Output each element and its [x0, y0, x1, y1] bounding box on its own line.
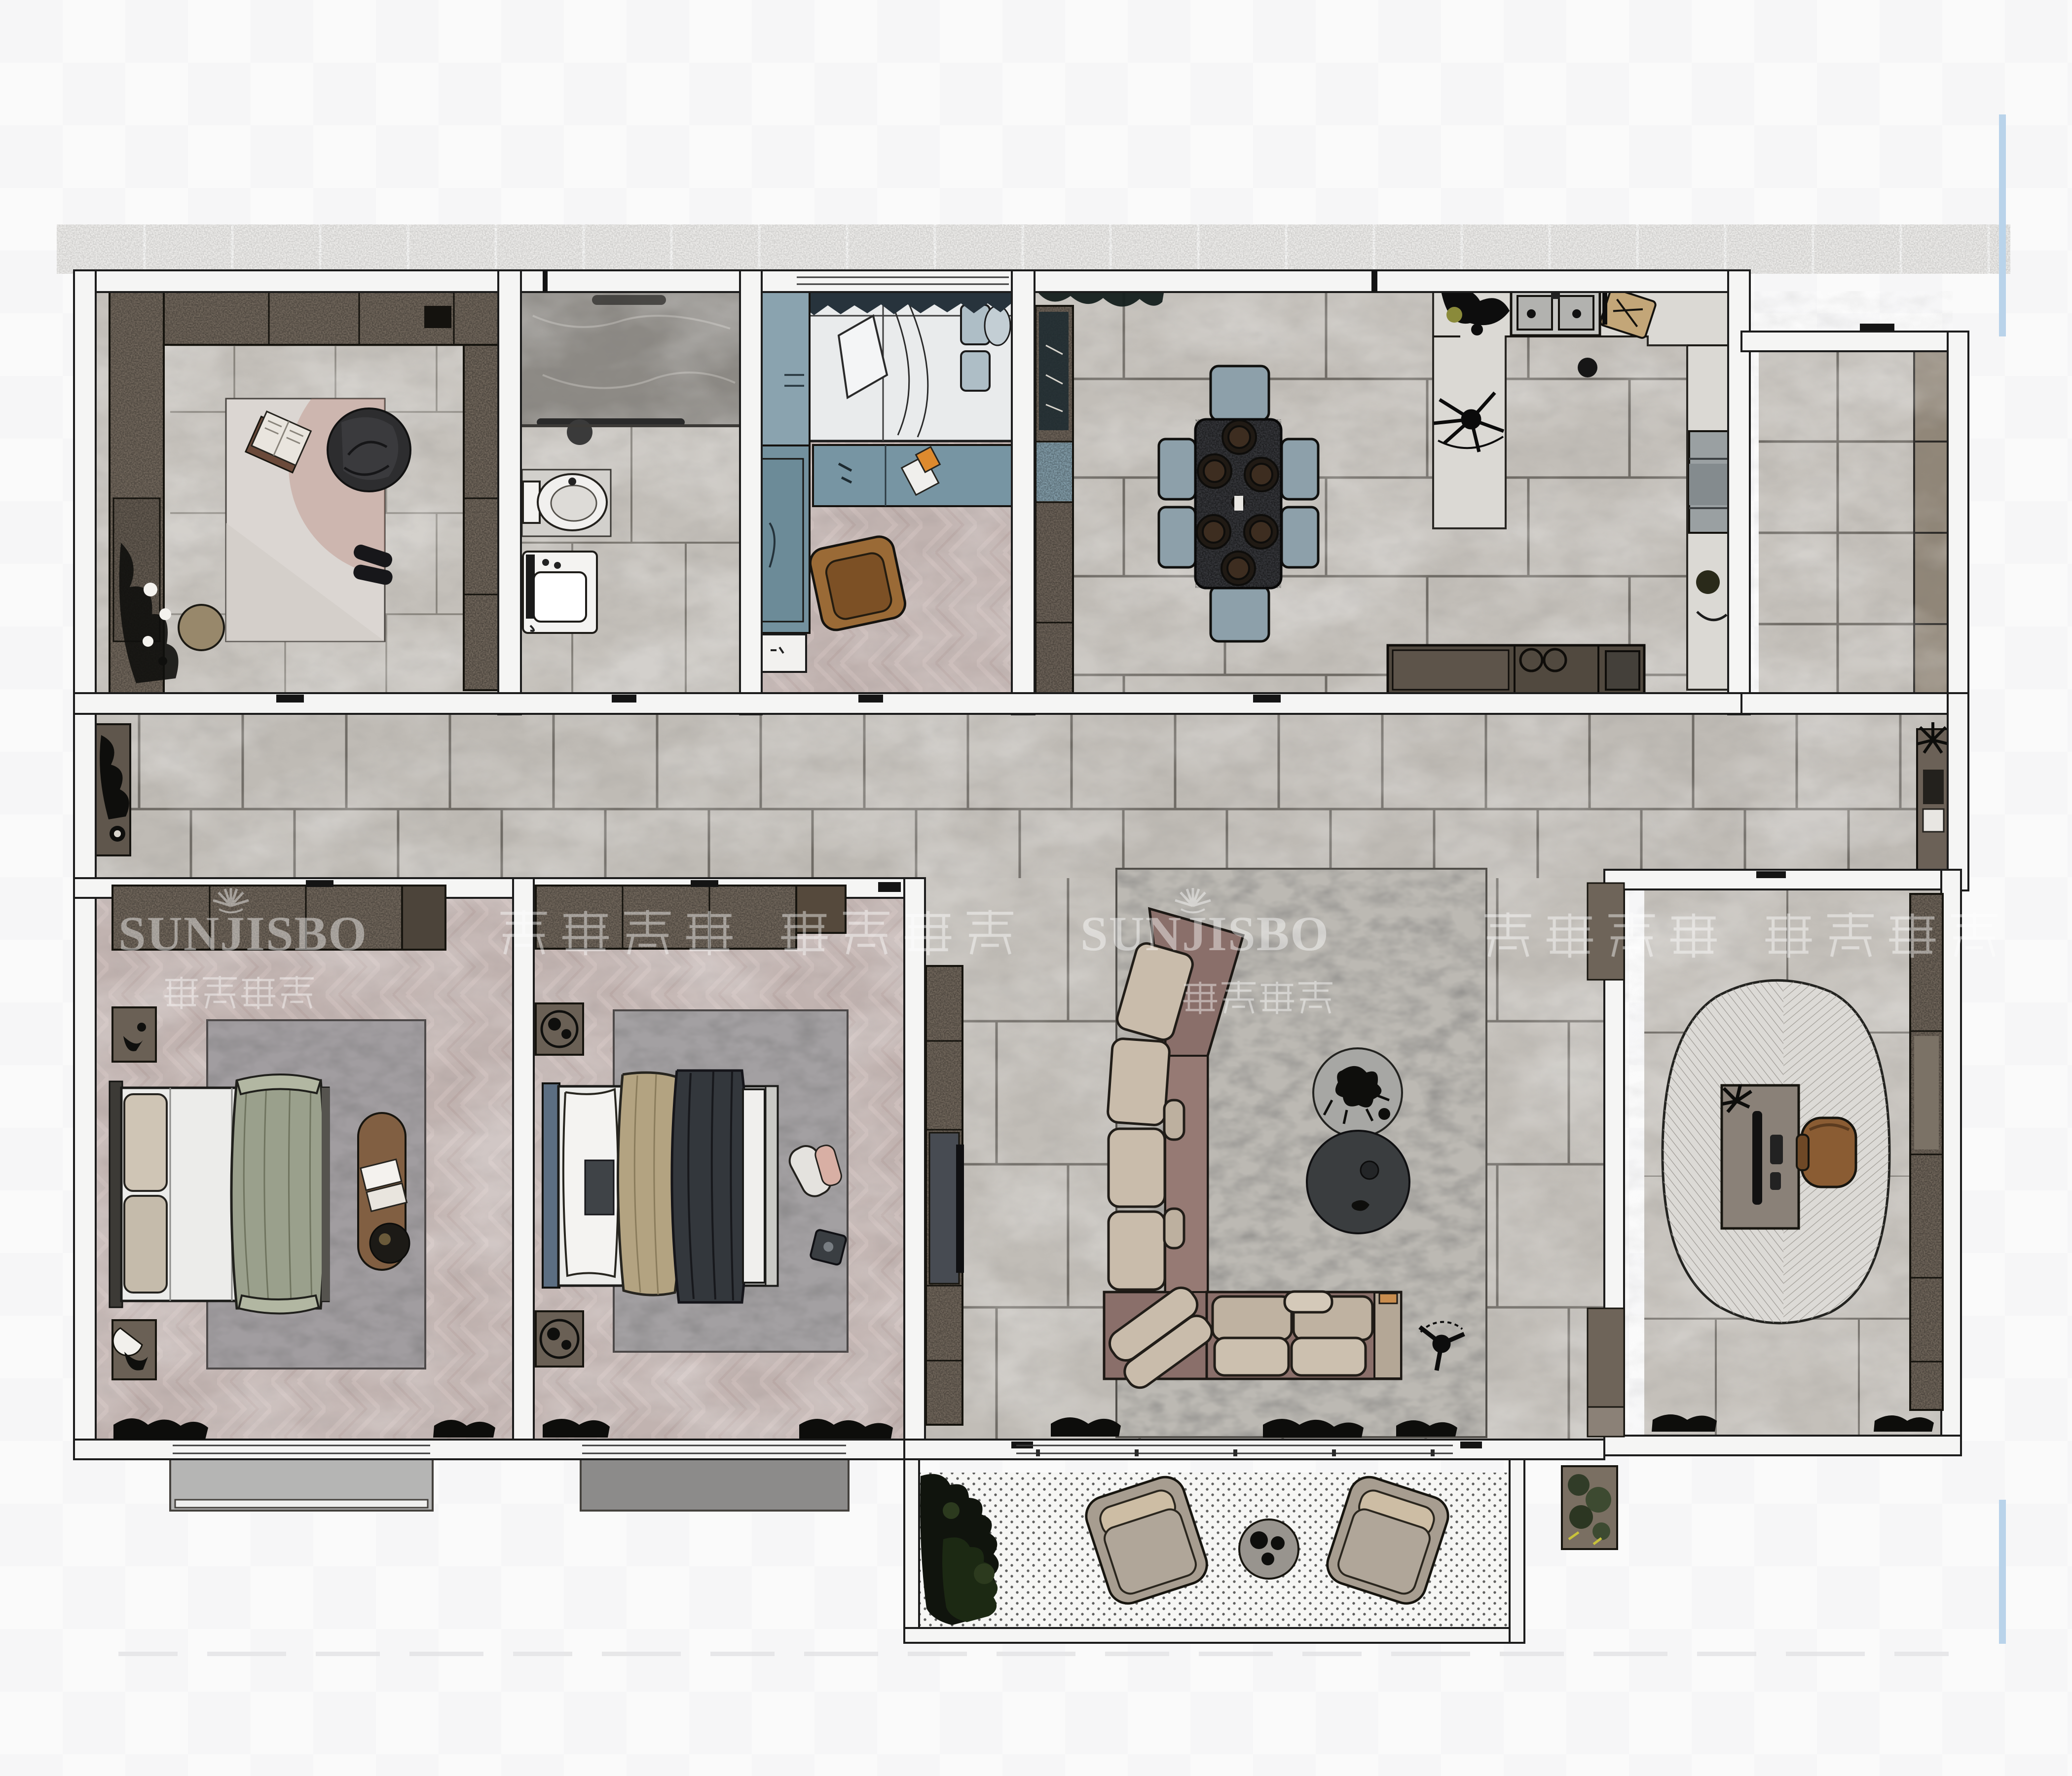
svg-text:SUNJISBO: SUNJISBO — [1080, 906, 1330, 961]
svg-text:SUNJISBO: SUNJISBO — [118, 906, 368, 961]
